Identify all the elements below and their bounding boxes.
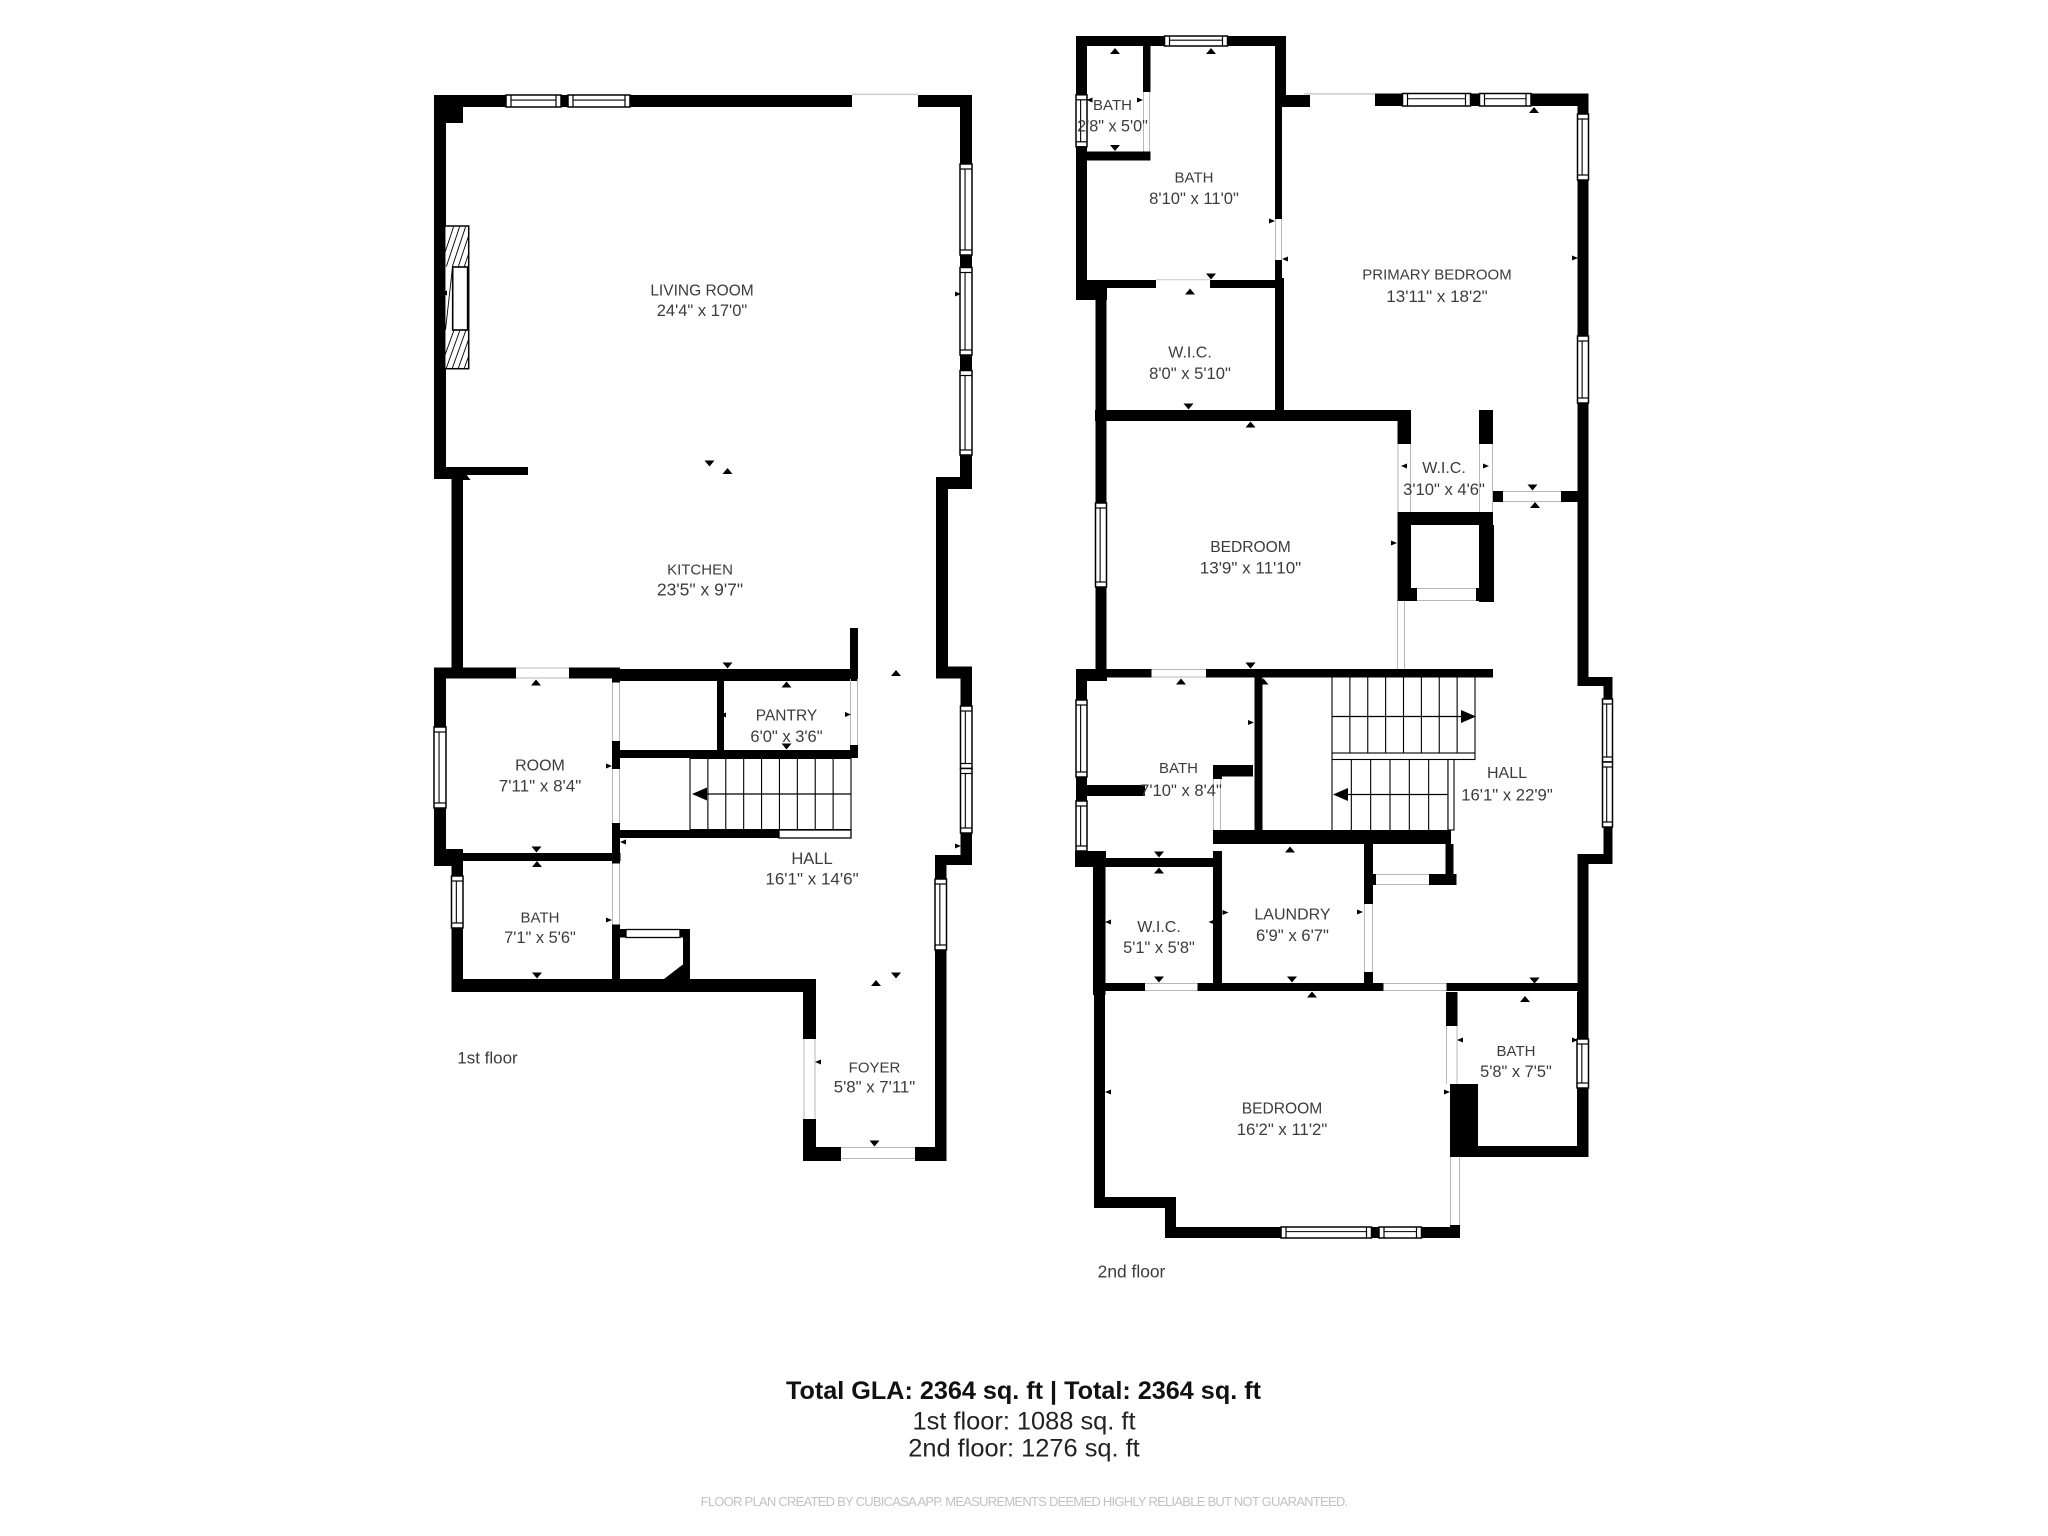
svg-text:PANTRY: PANTRY (756, 708, 817, 725)
svg-text:16'1" x 14'6": 16'1" x 14'6" (765, 869, 858, 888)
svg-text:Total GLA: 2364 sq. ft | Total: Total GLA: 2364 sq. ft | Total: 2364 sq.… (786, 1377, 1262, 1405)
svg-text:2nd floor: 1276 sq. ft: 2nd floor: 1276 sq. ft (908, 1435, 1140, 1463)
svg-text:13'11" x 18'2": 13'11" x 18'2" (1386, 287, 1487, 306)
svg-text:1st floor: 1088 sq. ft: 1st floor: 1088 sq. ft (913, 1408, 1136, 1436)
svg-text:23'5" x 9'7": 23'5" x 9'7" (657, 580, 743, 600)
svg-text:3'10" x 4'6": 3'10" x 4'6" (1403, 480, 1485, 499)
svg-text:BEDROOM: BEDROOM (1210, 539, 1291, 556)
svg-text:BATH: BATH (1175, 169, 1214, 186)
svg-text:FLOOR PLAN CREATED BY CUBICASA: FLOOR PLAN CREATED BY CUBICASA APP. MEAS… (701, 1494, 1348, 1509)
svg-text:W.I.C.: W.I.C. (1168, 345, 1212, 362)
svg-text:7'1" x 5'6": 7'1" x 5'6" (504, 929, 576, 947)
svg-text:1st floor: 1st floor (457, 1048, 518, 1067)
svg-text:7'11" x 8'4": 7'11" x 8'4" (499, 776, 582, 795)
svg-text:KITCHEN: KITCHEN (667, 561, 733, 578)
svg-text:6'9" x 6'7": 6'9" x 6'7" (1256, 926, 1329, 945)
svg-text:BATH: BATH (1497, 1043, 1536, 1060)
svg-text:5'1" x 5'8": 5'1" x 5'8" (1123, 939, 1195, 957)
svg-text:LIVING ROOM: LIVING ROOM (650, 283, 753, 300)
svg-text:2'8" x 5'0": 2'8" x 5'0" (1077, 117, 1148, 135)
svg-text:16'1" x 22'9": 16'1" x 22'9" (1461, 785, 1553, 804)
svg-text:2nd floor: 2nd floor (1098, 1262, 1166, 1282)
svg-text:7'10" x 8'4": 7'10" x 8'4" (1140, 781, 1222, 800)
svg-text:5'8" x 7'5": 5'8" x 7'5" (1480, 1063, 1552, 1081)
svg-text:LAUNDRY: LAUNDRY (1254, 907, 1331, 924)
svg-text:HALL: HALL (791, 850, 832, 868)
svg-text:BEDROOM: BEDROOM (1242, 1101, 1323, 1118)
svg-text:16'2" x 11'2": 16'2" x 11'2" (1237, 1120, 1328, 1139)
svg-text:ROOM: ROOM (515, 758, 565, 775)
svg-text:FOYER: FOYER (849, 1059, 901, 1076)
svg-text:8'10" x 11'0": 8'10" x 11'0" (1149, 189, 1239, 208)
svg-text:W.I.C.: W.I.C. (1137, 919, 1181, 936)
svg-text:PRIMARY BEDROOM: PRIMARY BEDROOM (1362, 266, 1511, 283)
svg-text:6'0" x 3'6": 6'0" x 3'6" (750, 728, 822, 746)
svg-text:8'0" x 5'10": 8'0" x 5'10" (1149, 364, 1231, 383)
svg-text:HALL: HALL (1487, 765, 1527, 782)
svg-text:W.I.C.: W.I.C. (1422, 460, 1466, 477)
svg-text:BATH: BATH (1159, 760, 1198, 777)
svg-text:13'9" x 11'10": 13'9" x 11'10" (1200, 558, 1301, 577)
svg-text:BATH: BATH (521, 909, 560, 926)
svg-text:5'8" x 7'11": 5'8" x 7'11" (834, 1077, 915, 1096)
svg-text:24'4" x 17'0": 24'4" x 17'0" (657, 302, 748, 320)
svg-text:BATH: BATH (1093, 97, 1132, 114)
